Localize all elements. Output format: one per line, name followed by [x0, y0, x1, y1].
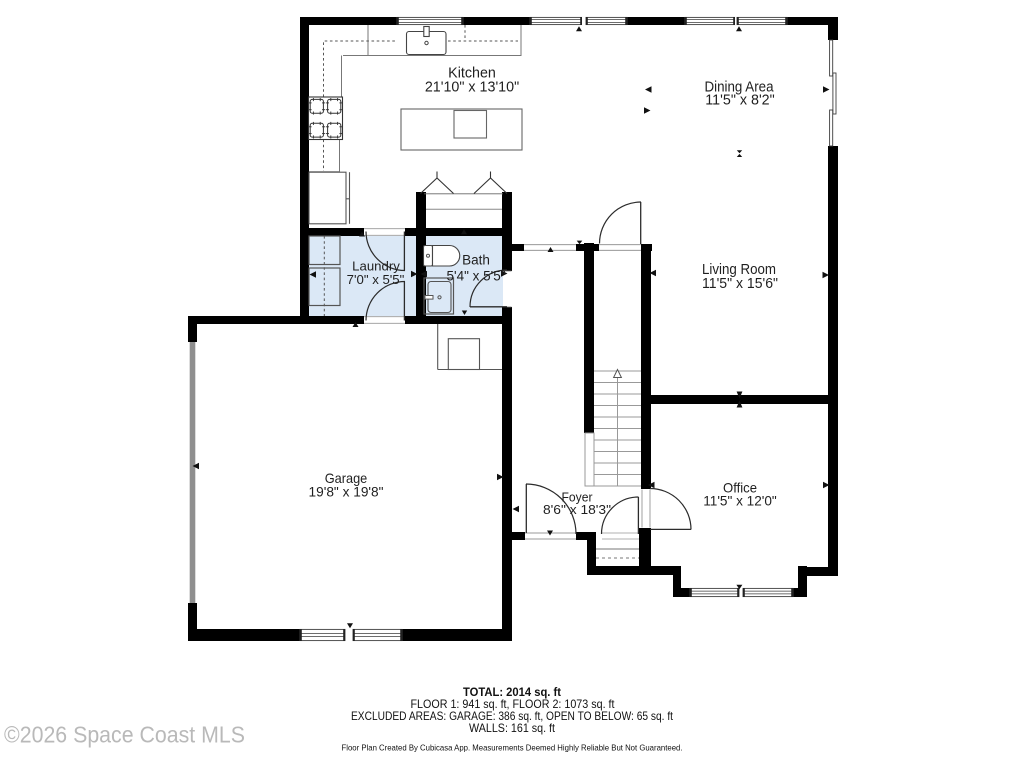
svg-text:11'5" x 15'6": 11'5" x 15'6"	[702, 276, 778, 292]
svg-text:Bath: Bath	[462, 253, 490, 268]
svg-text:8'6" x 18'3": 8'6" x 18'3"	[543, 502, 611, 517]
svg-text:21'10" x 13'10": 21'10" x 13'10"	[425, 80, 519, 96]
svg-text:11'5" x 8'2": 11'5" x 8'2"	[705, 93, 774, 109]
svg-text:Floor Plan Created By Cubicasa: Floor Plan Created By Cubicasa App. Meas…	[342, 743, 683, 753]
svg-text:19'8" x 19'8": 19'8" x 19'8"	[309, 484, 384, 500]
svg-text:©2026 Space Coast MLS: ©2026 Space Coast MLS	[4, 722, 245, 748]
svg-text:11'5" x 12'0": 11'5" x 12'0"	[703, 494, 777, 509]
svg-text:5'4" x 5'5": 5'4" x 5'5"	[446, 269, 505, 284]
svg-text:WALLS: 161 sq. ft: WALLS: 161 sq. ft	[469, 721, 556, 735]
svg-text:7'0" x 5'5": 7'0" x 5'5"	[347, 272, 405, 287]
